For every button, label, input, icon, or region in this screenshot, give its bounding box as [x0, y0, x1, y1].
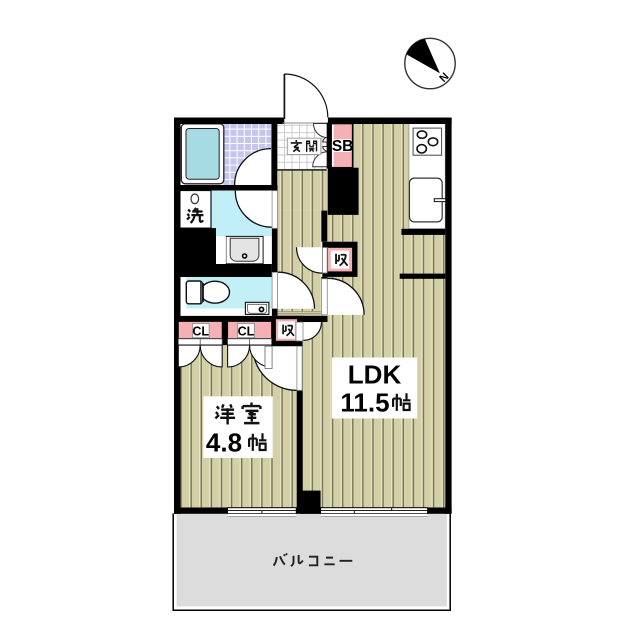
- svg-text:SB: SB: [332, 138, 354, 155]
- svg-text:11.5: 11.5: [340, 388, 389, 418]
- svg-text:CL: CL: [192, 324, 209, 338]
- svg-text:LDK: LDK: [348, 360, 402, 390]
- svg-text:4.8: 4.8: [206, 428, 242, 458]
- svg-text:CL: CL: [238, 324, 255, 338]
